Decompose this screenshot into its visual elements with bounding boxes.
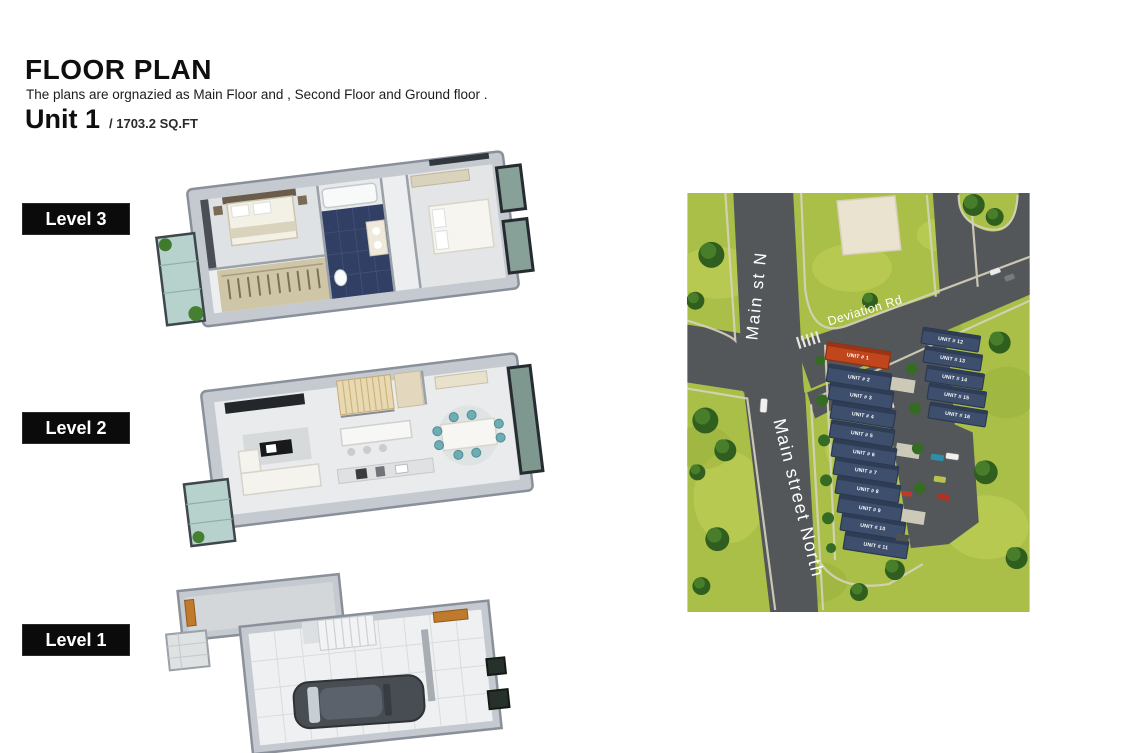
unit-area: / 1703.2 SQ.FT xyxy=(109,116,198,131)
dining-table xyxy=(441,418,498,450)
level-2-floorplan xyxy=(176,342,516,544)
staircase xyxy=(336,375,394,415)
page-subtitle: The plans are orgnazied as Main Floor an… xyxy=(26,87,488,102)
window-right-bottom xyxy=(488,689,510,709)
page-title: FLOOR PLAN xyxy=(25,54,212,86)
level-2-badge: Level 2 xyxy=(22,412,130,444)
unit-name: Unit 1 xyxy=(25,104,100,135)
car xyxy=(293,674,426,729)
site-map-svg: UNIT # 1 UNIT # 2 UNIT # 3 UNIT # 4 UNIT… xyxy=(687,193,1030,612)
level-3-badge: Level 3 xyxy=(22,203,130,235)
building xyxy=(837,196,901,255)
brochure-page: FLOOR PLAN The plans are orgnazied as Ma… xyxy=(0,0,1140,753)
site-map: UNIT # 1 UNIT # 2 UNIT # 3 UNIT # 4 UNIT… xyxy=(687,193,1030,612)
balcony-right-top xyxy=(496,165,525,212)
level-1-floorplan xyxy=(158,534,510,734)
balcony-right-bottom xyxy=(503,219,533,274)
level-3-floorplan xyxy=(160,134,512,344)
porch xyxy=(166,630,210,670)
level-1-badge: Level 1 xyxy=(22,624,130,656)
unit-heading: Unit 1 / 1703.2 SQ.FT xyxy=(25,104,198,135)
window-right-top xyxy=(486,657,506,675)
